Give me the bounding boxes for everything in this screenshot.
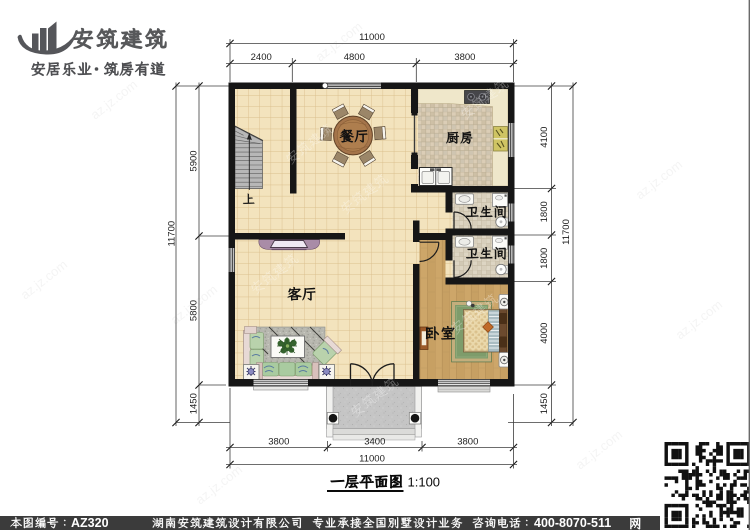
svg-text:3800: 3800 [454, 52, 475, 63]
svg-text:5900: 5900 [189, 150, 200, 171]
svg-text:1450: 1450 [189, 393, 200, 414]
svg-text:AZ320: AZ320 [71, 516, 109, 530]
svg-text:4100: 4100 [539, 127, 550, 148]
svg-text:1:100: 1:100 [408, 475, 441, 490]
svg-text:11000: 11000 [359, 454, 385, 465]
svg-text:2400: 2400 [251, 52, 272, 63]
svg-text:1800: 1800 [539, 201, 550, 222]
svg-text:11000: 11000 [359, 32, 385, 43]
svg-text:400-8070-511: 400-8070-511 [534, 516, 611, 530]
svg-text:3800: 3800 [457, 437, 478, 448]
svg-text:4000: 4000 [539, 323, 550, 344]
svg-text:4800: 4800 [344, 52, 365, 63]
svg-text:11700: 11700 [561, 219, 572, 245]
svg-text:1450: 1450 [539, 393, 550, 414]
svg-text:3800: 3800 [268, 437, 289, 448]
svg-text:11700: 11700 [167, 221, 178, 247]
svg-text:3400: 3400 [364, 437, 385, 448]
svg-text:1800: 1800 [539, 248, 550, 269]
